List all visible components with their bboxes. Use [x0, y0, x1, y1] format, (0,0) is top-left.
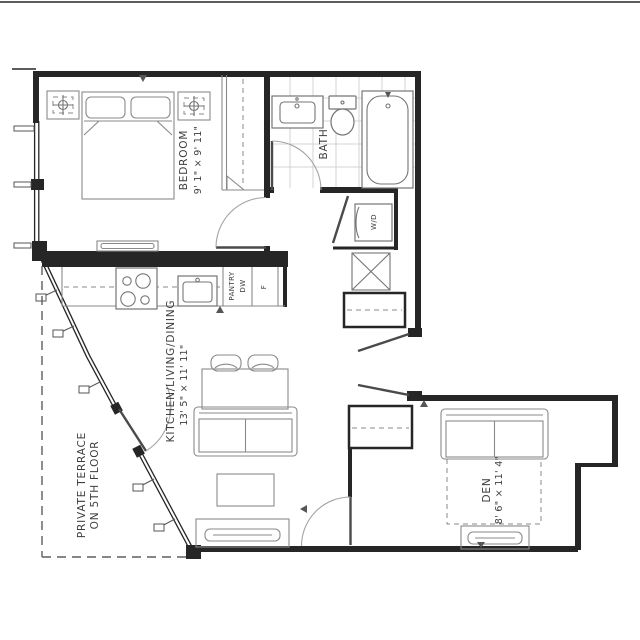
terrace-label-line2: ON 5TH FLOOR: [89, 441, 101, 530]
window-tab: [14, 243, 31, 248]
closet-corner: [227, 176, 244, 190]
entry-door-leaf: [358, 334, 409, 351]
pantry-label: PANTRY: [228, 271, 236, 300]
dining-table: [202, 369, 288, 409]
mullion-tab: [36, 294, 46, 301]
bathroom-fixtures: [272, 91, 413, 188]
fridge-label: F: [260, 285, 268, 289]
wd-label: W/D: [370, 214, 378, 230]
toilet-tank: [329, 96, 356, 109]
floor-plan-drawing: BEDROOM 9' 1" × 9' 11" BATH W/D PANTRY D…: [0, 0, 640, 640]
arrow-marker: [420, 400, 428, 407]
pillow: [86, 97, 125, 118]
den-dims: 8' 6" × 11' 4": [494, 456, 505, 524]
kitchen-dims: 13' 5" × 11' 11": [179, 344, 190, 425]
wd-door: [333, 196, 348, 243]
bedroom-label: BEDROOM: [178, 130, 190, 190]
dresser: [97, 241, 158, 251]
mullion-tab: [154, 524, 164, 531]
pillow: [131, 97, 170, 118]
bedroom-south-wall: [42, 251, 288, 267]
floor-plan: BEDROOM 9' 1" × 9' 11" BATH W/D PANTRY D…: [0, 0, 640, 640]
entry-jamb-upper: [408, 328, 422, 337]
annotations: [139, 75, 485, 548]
terrace-door: [119, 409, 146, 451]
entry-door-leaf: [358, 385, 409, 395]
mullion-tab: [79, 386, 89, 393]
blanket-fold: [84, 121, 172, 135]
coffee-table: [217, 474, 274, 506]
bedroom-furniture: [47, 75, 264, 251]
kitchen-label: KITCHEN/LIVING/DINING: [165, 300, 177, 443]
arrow-marker: [139, 75, 147, 82]
dw-label: DW: [239, 279, 247, 292]
window-tab: [14, 126, 34, 131]
window-tab: [14, 182, 31, 187]
mullion-tab: [133, 484, 143, 491]
tv-console: [196, 519, 289, 547]
living-furniture: [194, 355, 297, 547]
mullion-tab: [53, 330, 63, 337]
arrow-marker: [216, 306, 224, 313]
window-mullion: [31, 179, 44, 190]
bath-label: BATH: [318, 128, 330, 159]
bedroom-dims: 9' 1" × 9' 11": [193, 126, 204, 194]
toilet-bowl: [331, 109, 354, 135]
terrace-label-line1: PRIVATE TERRACE: [76, 432, 88, 538]
den-label: DEN: [481, 478, 493, 503]
doors: [119, 141, 409, 546]
left-windows: [14, 121, 39, 248]
bathtub: [362, 91, 413, 188]
labels: BEDROOM 9' 1" × 9' 11" BATH W/D PANTRY D…: [76, 126, 505, 538]
bed: [82, 92, 174, 199]
closet-sliding-doors: [222, 75, 227, 190]
coat-closet: [349, 406, 412, 448]
arrow-marker: [300, 505, 307, 513]
shaft-x: [352, 253, 390, 290]
